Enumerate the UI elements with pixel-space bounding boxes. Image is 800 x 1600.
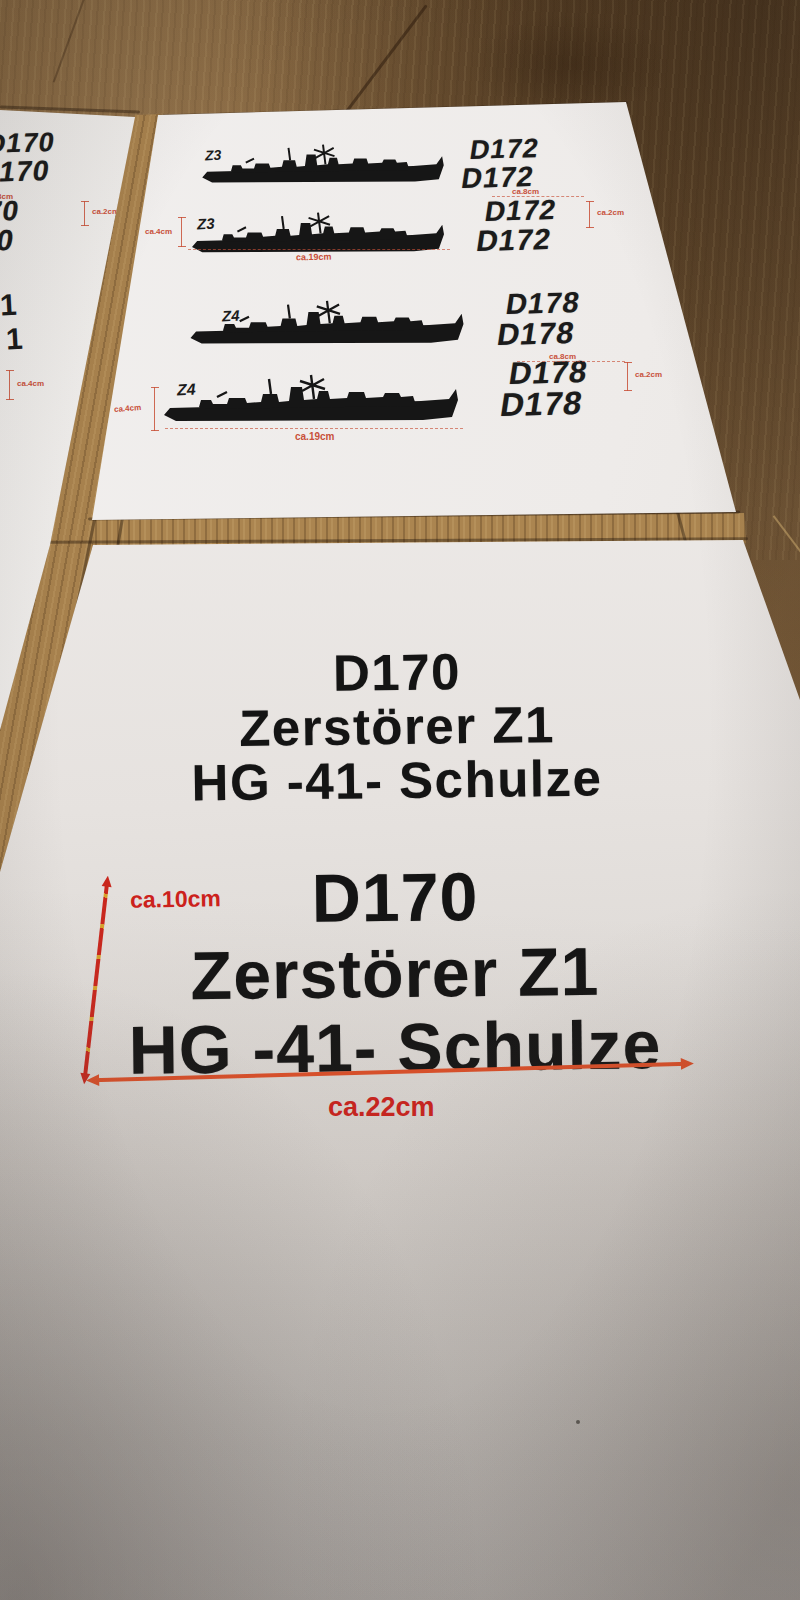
dimension-bracket bbox=[154, 387, 155, 431]
dimension-label: ca.2cm bbox=[92, 207, 119, 216]
dimension-label: ca.4cm bbox=[17, 379, 44, 388]
registry-number: D170 bbox=[0, 156, 53, 186]
photo-canvas: D170 D170 ca.8cm D170 D170 ca.2cm 1 1 ca… bbox=[0, 0, 800, 1600]
paper-shading bbox=[0, 540, 800, 1600]
destroyer-silhouette bbox=[157, 373, 465, 429]
dimension-label: ca.19cm bbox=[295, 431, 334, 442]
registry-number-pair: D178 D178 bbox=[502, 356, 590, 422]
dimension-bracket bbox=[181, 217, 182, 247]
registry-number: D172 bbox=[475, 224, 555, 255]
dimension-line bbox=[188, 249, 450, 250]
dimension-bracket bbox=[589, 201, 590, 228]
dimension-label: ca.4cm bbox=[114, 403, 142, 414]
dimension-line bbox=[492, 196, 584, 197]
registry-number-pair: D170 D170 bbox=[0, 197, 21, 256]
clipped-text-fragment: 1 bbox=[5, 324, 23, 355]
clipped-text-fragment: 1 bbox=[0, 290, 17, 321]
dimension-bracket bbox=[84, 201, 85, 226]
registry-number: D170 bbox=[0, 225, 17, 256]
dimension-label: ca.4cm bbox=[145, 227, 172, 236]
registry-number-pair: D172 D172 bbox=[464, 135, 541, 192]
dimension-label: ca.19cm bbox=[296, 252, 332, 263]
registry-number-pair: D172 D172 bbox=[479, 196, 559, 255]
registry-number-pair: D170 D170 bbox=[0, 129, 57, 186]
registry-number: D178 bbox=[495, 317, 577, 349]
destroyer-silhouette bbox=[183, 299, 471, 351]
dimension-label: ca.8cm bbox=[549, 352, 576, 361]
dimension-line bbox=[517, 361, 625, 362]
destroyer-silhouette bbox=[190, 143, 456, 189]
registry-number-pair: D178 D178 bbox=[499, 288, 582, 349]
dimension-label: ca.8cm bbox=[512, 187, 539, 196]
dimension-label: ca.2cm bbox=[635, 370, 662, 379]
dimension-bracket bbox=[627, 362, 628, 391]
dimension-bracket bbox=[9, 370, 10, 400]
dimension-line bbox=[165, 428, 463, 429]
paper-speck bbox=[576, 1420, 580, 1424]
dimension-label: ca.2cm bbox=[597, 208, 624, 217]
registry-number: D178 bbox=[498, 387, 585, 422]
